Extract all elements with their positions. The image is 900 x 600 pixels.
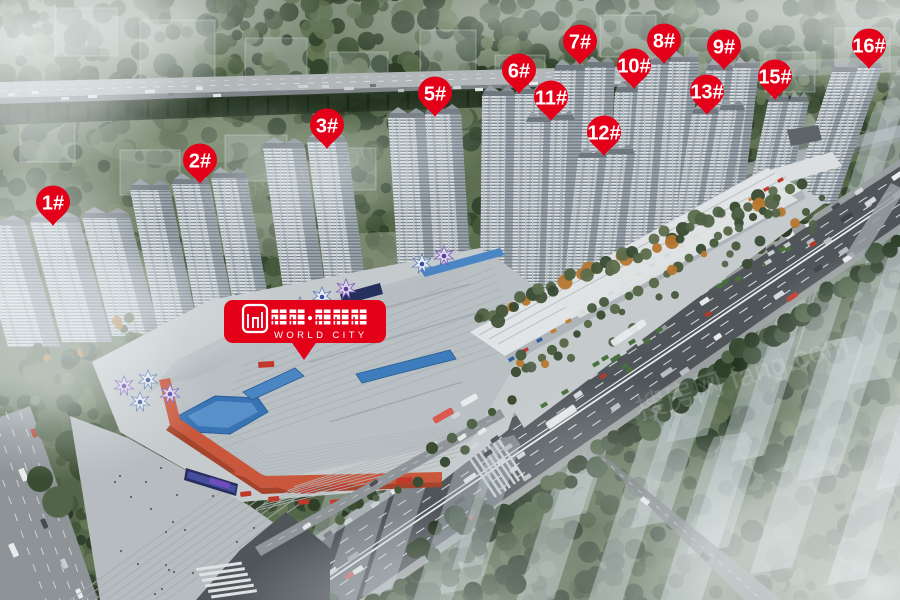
svg-text:11#: 11# xyxy=(535,88,567,110)
svg-text:9#: 9# xyxy=(713,37,735,59)
svg-text:WORLD CITY: WORLD CITY xyxy=(274,330,368,341)
svg-text:3#: 3# xyxy=(316,116,338,138)
svg-text:6#: 6# xyxy=(508,61,530,83)
svg-text:5#: 5# xyxy=(424,84,446,106)
svg-text:12#: 12# xyxy=(587,123,620,145)
svg-text:13#: 13# xyxy=(690,82,723,104)
svg-text:8#: 8# xyxy=(653,31,675,53)
svg-text:10#: 10# xyxy=(617,56,650,78)
svg-text:2#: 2# xyxy=(189,151,211,173)
svg-text:7#: 7# xyxy=(569,32,591,54)
svg-text:15#: 15# xyxy=(758,67,791,89)
svg-text:1#: 1# xyxy=(42,193,64,215)
svg-text:16#: 16# xyxy=(852,36,885,58)
